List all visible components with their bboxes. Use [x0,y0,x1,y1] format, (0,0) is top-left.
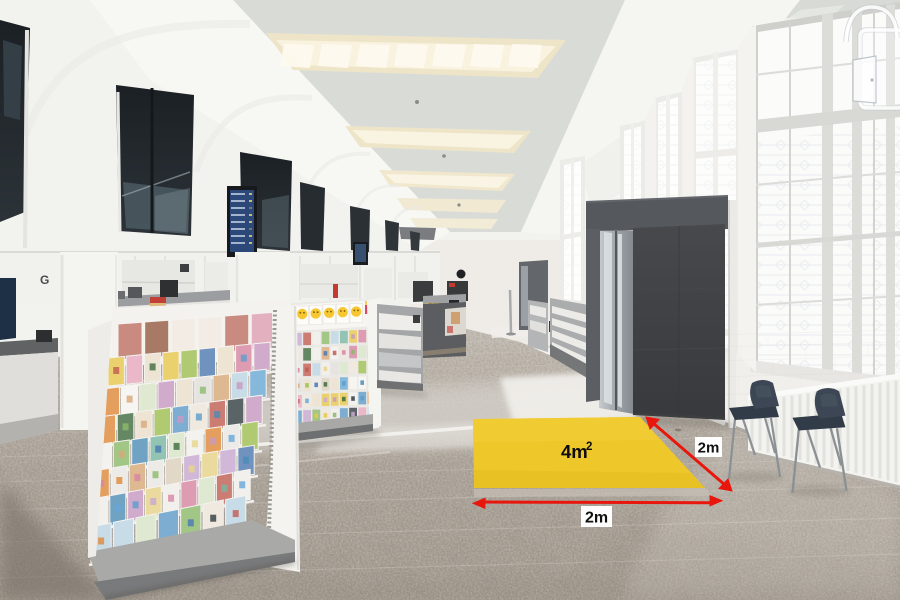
svg-text:2: 2 [586,441,592,453]
svg-text:G: G [40,273,49,287]
svg-text:4m: 4m [561,441,588,462]
svg-text:2m: 2m [585,510,608,527]
svg-text:2m: 2m [698,440,720,457]
